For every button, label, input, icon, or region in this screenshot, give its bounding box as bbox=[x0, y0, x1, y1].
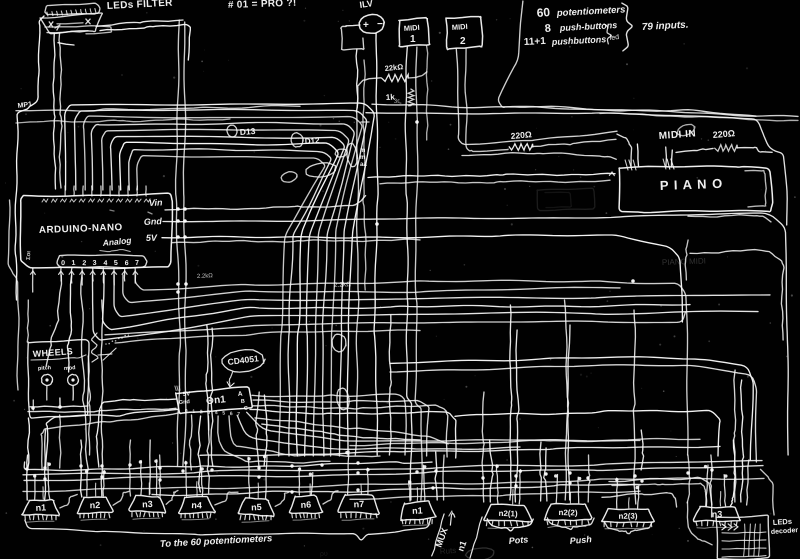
svg-text:led: led bbox=[609, 34, 619, 42]
svg-text:3ε: 3ε bbox=[394, 98, 401, 105]
svg-text:Ruts: Ruts bbox=[440, 546, 457, 556]
svg-text:2: 2 bbox=[82, 260, 86, 267]
svg-text:n5: n5 bbox=[251, 502, 262, 512]
svg-text:2: 2 bbox=[460, 36, 466, 47]
svg-text:11+1: 11+1 bbox=[524, 36, 547, 48]
svg-text:−: − bbox=[377, 19, 383, 30]
svg-text:PIANO MIDI: PIANO MIDI bbox=[662, 256, 706, 267]
svg-text:MIDI: MIDI bbox=[404, 23, 420, 33]
svg-text:Vin: Vin bbox=[149, 197, 164, 208]
svg-text:3: 3 bbox=[93, 260, 97, 267]
svg-text:n6: n6 bbox=[300, 500, 311, 510]
svg-text:n4: n4 bbox=[191, 500, 202, 510]
svg-text:Pots: Pots bbox=[508, 534, 528, 546]
svg-text:C: C bbox=[244, 406, 249, 412]
svg-text:D12: D12 bbox=[305, 136, 321, 146]
svg-text:Σοι: Σοι bbox=[26, 251, 32, 260]
svg-text:1: 1 bbox=[410, 34, 416, 45]
svg-text:+: + bbox=[363, 20, 369, 31]
svg-text:n3: n3 bbox=[142, 499, 153, 509]
svg-text:A: A bbox=[238, 391, 244, 398]
svg-text:m: m bbox=[360, 148, 365, 154]
svg-text:1: 1 bbox=[71, 260, 75, 267]
svg-text:pitch: pitch bbox=[38, 365, 52, 372]
svg-text:LEDs: LEDs bbox=[773, 517, 793, 527]
svg-text:MIDI: MIDI bbox=[452, 22, 468, 32]
svg-text:22kΩ: 22kΩ bbox=[384, 62, 403, 73]
svg-text:60: 60 bbox=[536, 5, 551, 20]
svg-text:220Ω: 220Ω bbox=[510, 129, 532, 141]
svg-text:Gnd: Gnd bbox=[179, 399, 190, 406]
svg-text:P I A N O: P I A N O bbox=[660, 176, 724, 193]
svg-text:m: m bbox=[360, 155, 365, 161]
svg-text:D13: D13 bbox=[239, 126, 256, 137]
svg-text:n2(3): n2(3) bbox=[618, 512, 638, 521]
svg-text:n2: n2 bbox=[90, 500, 101, 510]
svg-text:n1: n1 bbox=[35, 502, 46, 512]
svg-text:5V: 5V bbox=[183, 391, 191, 398]
svg-text:4: 4 bbox=[103, 260, 107, 267]
svg-text:Gnd: Gnd bbox=[144, 216, 163, 227]
svg-text:Push: Push bbox=[569, 534, 592, 546]
svg-text:5V: 5V bbox=[146, 233, 158, 243]
svg-text:0: 0 bbox=[61, 260, 65, 267]
svg-text:8: 8 bbox=[544, 23, 551, 35]
svg-text:n2(1): n2(1) bbox=[498, 509, 518, 519]
svg-text:mod: mod bbox=[64, 365, 76, 372]
svg-text:2.2kΩ: 2.2kΩ bbox=[334, 281, 352, 289]
svg-text:n7: n7 bbox=[353, 499, 364, 509]
svg-text:220Ω: 220Ω bbox=[712, 128, 735, 140]
svg-text:ρυ: ρυ bbox=[320, 551, 328, 558]
svg-text:n2(2): n2(2) bbox=[558, 508, 578, 517]
svg-text:7: 7 bbox=[135, 260, 139, 267]
svg-text:5: 5 bbox=[114, 260, 118, 267]
svg-text:B: B bbox=[241, 399, 246, 405]
svg-text:aa: aa bbox=[360, 162, 367, 168]
svg-text:n1: n1 bbox=[412, 506, 423, 516]
svg-text:2.2kΩ: 2.2kΩ bbox=[197, 273, 214, 280]
svg-text:6: 6 bbox=[124, 260, 128, 267]
